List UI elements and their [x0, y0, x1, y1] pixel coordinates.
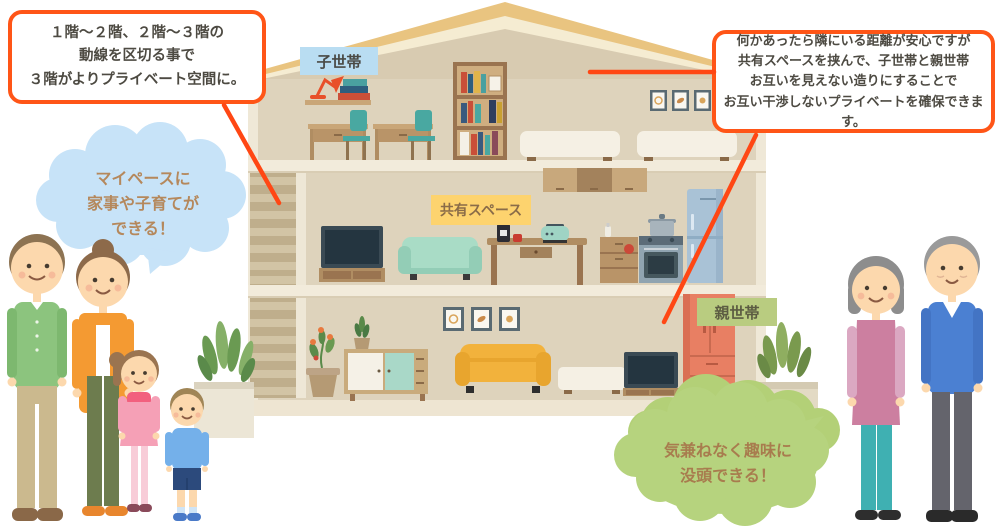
grandparents-speech-bubble-text: 気兼ねなく趣味に 没頭できる！	[642, 440, 814, 490]
toaster	[541, 224, 569, 243]
two-household-home-infographic: １階～２階、２階～３階の 動線を区切る事で ３階がよりプライベート空間に。 何か…	[0, 0, 999, 526]
callout-line: お互いを見えない造りにすることで	[750, 71, 958, 91]
white-low-bench	[558, 367, 626, 394]
wall-pictures-floor1	[443, 307, 520, 331]
person-son	[165, 388, 209, 521]
floor-label-shared-space: 共有スペース	[431, 195, 531, 225]
callout-stairs-note: １階～２階、２階～３階の 動線を区切る事で ３階がよりプライベート空間に。	[8, 10, 266, 104]
callout-line: 動線を区切る事で	[79, 45, 195, 68]
person-father	[7, 234, 67, 521]
callout-line: 何かあったら隣にいる距離が安心ですが	[736, 31, 970, 51]
family-speech-bubble-text: マイペースに 家事や子育てが できる！	[57, 168, 229, 242]
staircase-floor1	[250, 298, 306, 398]
bubble-line: マイペースに	[57, 168, 229, 193]
wall-cabinets	[543, 168, 647, 192]
white-bench-2	[637, 131, 737, 161]
white-bench-1	[520, 131, 620, 161]
bubble-line: できる！	[57, 218, 229, 243]
callout-line: お互い干渉しないプライベートを確保できます。	[716, 92, 991, 132]
staircase-floor2	[250, 173, 306, 285]
callout-line: 共有スペースを挟んで、子世帯と親世帯	[738, 51, 969, 71]
bubble-line: 家事や子育てが	[57, 193, 229, 218]
bubble-line: 気兼ねなく趣味に	[642, 440, 814, 465]
callout-line: ３階がよりプライベート空間に。	[29, 69, 245, 92]
tv-floor2	[319, 226, 385, 282]
refrigerator	[687, 189, 723, 283]
bookshelf	[453, 62, 507, 160]
floor-label-parent-household: 親世帯	[697, 298, 777, 326]
mint-sofa	[398, 237, 482, 280]
floor-label-child-household: 子世帯	[300, 47, 378, 75]
wall-pictures-floor3	[650, 90, 711, 111]
callout-line: １階～２階、２階～３階の	[50, 22, 224, 45]
person-grandmother	[847, 256, 905, 520]
tv-floor1	[623, 352, 679, 396]
bubble-line: 没頭できる！	[642, 465, 814, 490]
person-grandfather	[921, 236, 983, 522]
callout-privacy-note: 何かあったら隣にいる距離が安心ですが 共有スペースを挟んで、子世帯と親世帯 お互…	[712, 30, 995, 133]
